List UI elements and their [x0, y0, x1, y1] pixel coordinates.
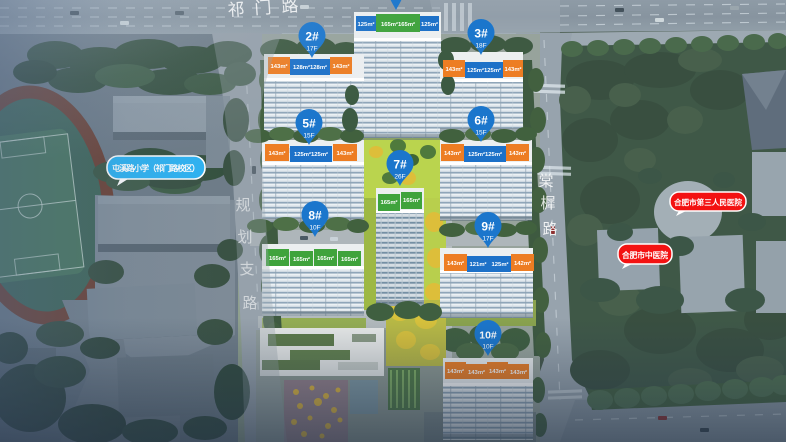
svg-text:9#: 9# [481, 220, 495, 234]
svg-text:26F: 26F [394, 174, 405, 181]
svg-text:165m²: 165m² [341, 256, 358, 263]
svg-text:143m²: 143m² [509, 150, 526, 157]
svg-text:142m²: 142m² [514, 260, 531, 267]
svg-text:17F: 17F [482, 236, 493, 243]
svg-text:15F: 15F [475, 130, 486, 137]
svg-text:樨: 樨 [540, 195, 555, 212]
svg-text:合肥市中医院: 合肥市中医院 [621, 250, 668, 260]
svg-text:165m²: 165m² [380, 199, 397, 206]
svg-text:125m²: 125m² [421, 21, 438, 28]
svg-text:165m²: 165m² [317, 255, 334, 262]
svg-text:125m²125m²: 125m²125m² [467, 67, 501, 74]
svg-text:10F: 10F [309, 225, 320, 232]
svg-text:121m²: 121m² [469, 261, 486, 268]
svg-text:6#: 6# [474, 114, 488, 128]
svg-text:3#: 3# [474, 27, 488, 41]
svg-text:143m²: 143m² [444, 150, 461, 157]
svg-text:165m²: 165m² [269, 255, 286, 262]
svg-text:8#: 8# [308, 209, 322, 223]
svg-text:143m²: 143m² [447, 260, 464, 267]
svg-text:125m²: 125m² [491, 261, 508, 268]
svg-text:125m²125m²: 125m²125m² [468, 151, 502, 158]
svg-text:18F: 18F [475, 43, 486, 50]
svg-text:143m²: 143m² [504, 66, 521, 73]
svg-text:143m²: 143m² [445, 66, 462, 73]
svg-text:棠: 棠 [538, 173, 553, 190]
svg-text:165m²: 165m² [403, 197, 420, 204]
svg-text:合肥市第三人民医院: 合肥市第三人民医院 [674, 197, 742, 207]
svg-text:路: 路 [542, 221, 557, 238]
svg-text:165m²: 165m² [293, 256, 310, 263]
